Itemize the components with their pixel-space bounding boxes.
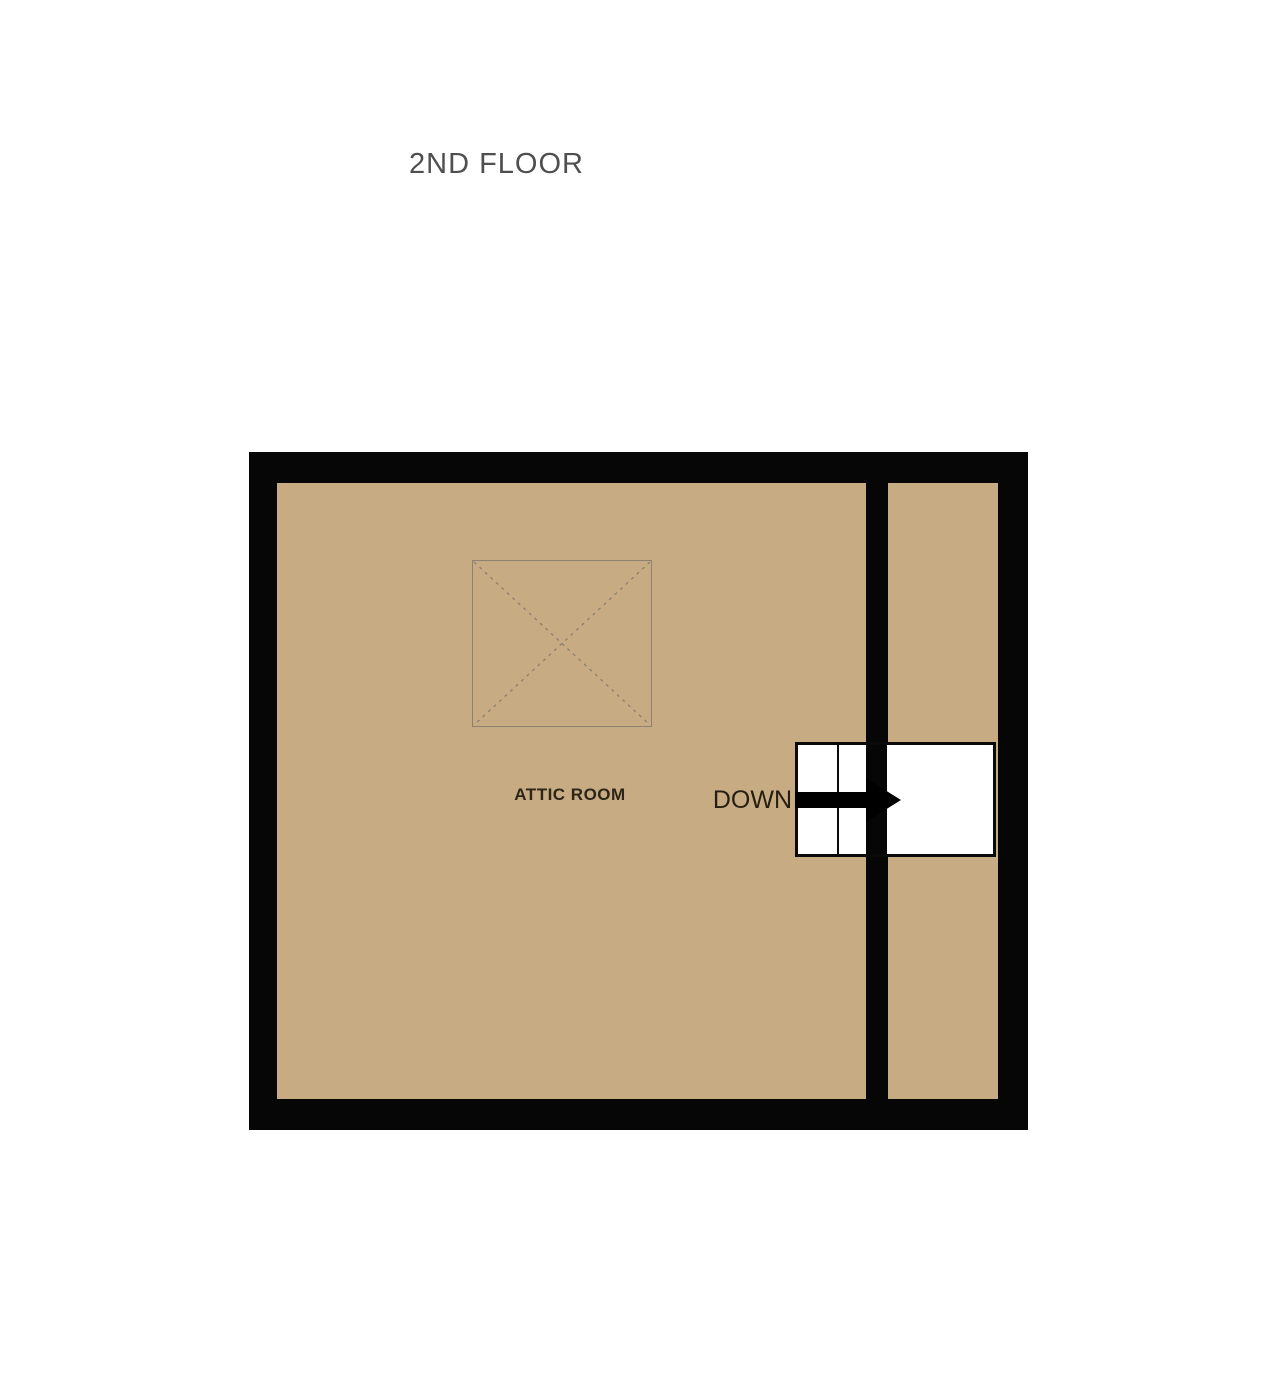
room-label: ATTIC ROOM — [470, 785, 670, 805]
stairs-down-label: DOWN — [680, 786, 792, 814]
floorplan-canvas: 2ND FLOOR ATTIC ROOM DOWN — [0, 0, 1280, 1383]
down-arrow-icon — [793, 775, 905, 825]
floor-title: 2ND FLOOR — [409, 147, 584, 181]
ceiling-opening — [472, 560, 652, 727]
ceiling-opening-x-icon — [473, 561, 651, 726]
